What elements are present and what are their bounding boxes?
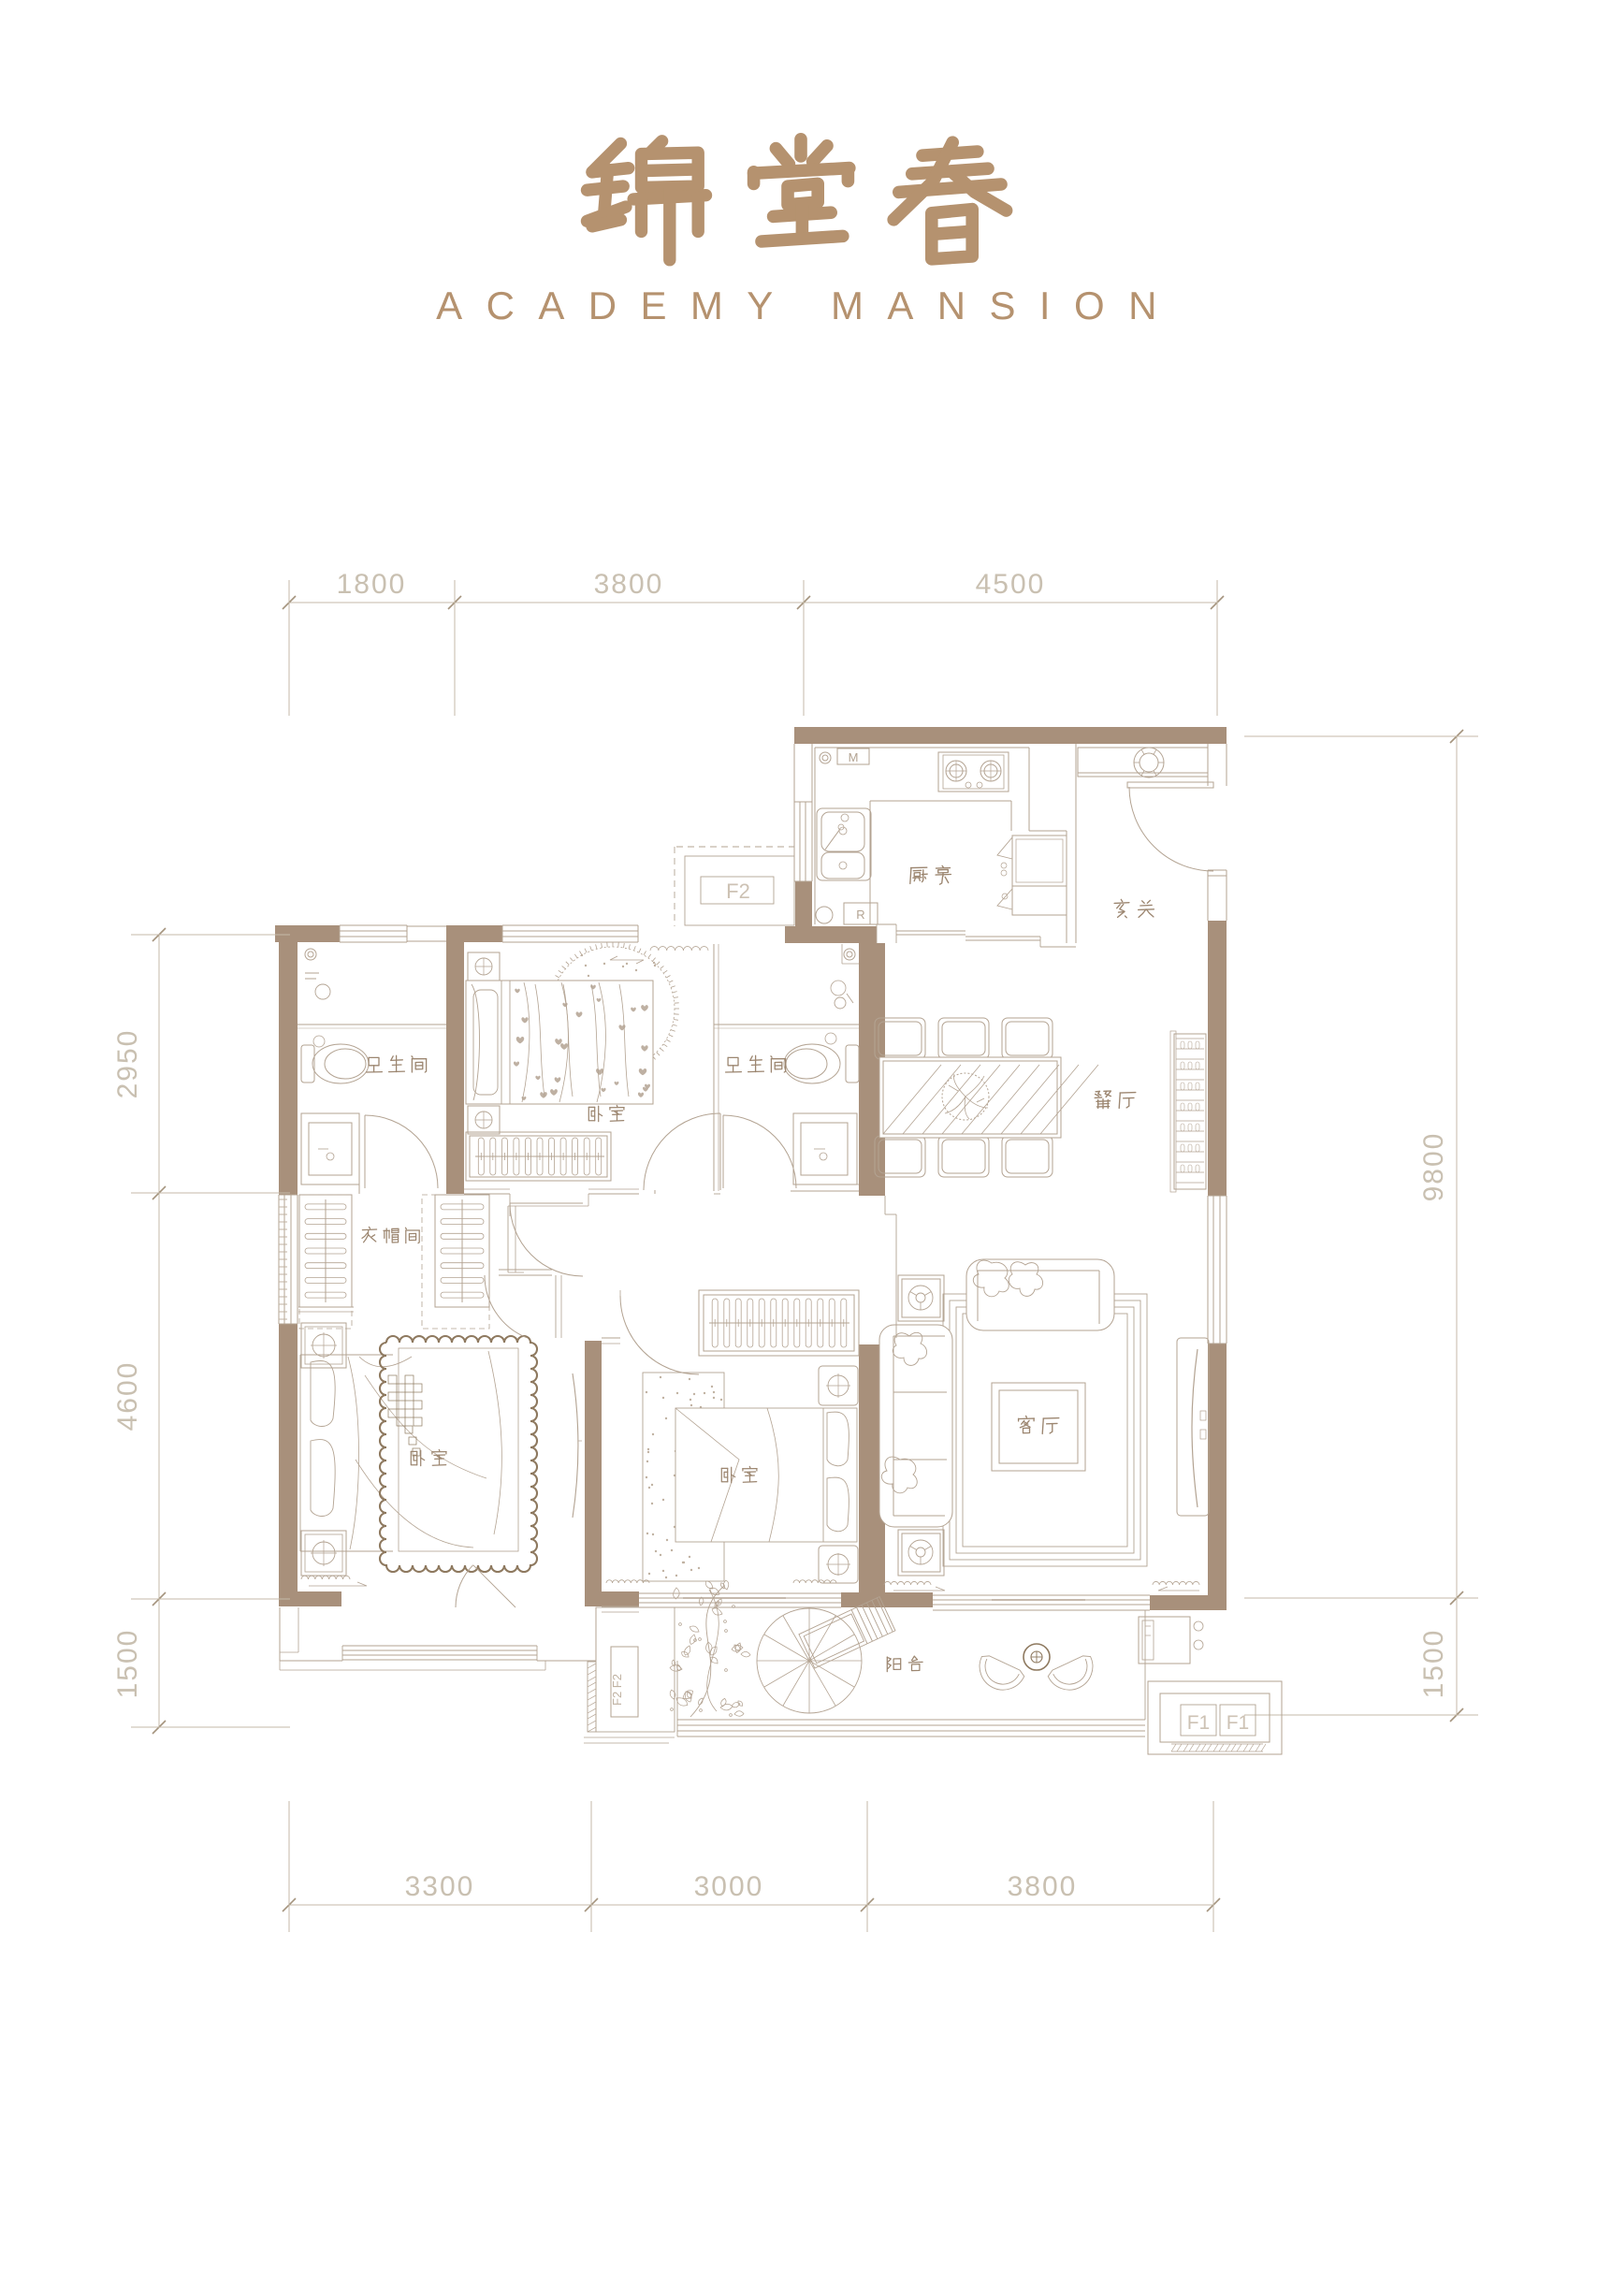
svg-text:1500: 1500 (112, 1629, 143, 1699)
svg-text:F1: F1 (1227, 1712, 1250, 1734)
svg-text:3300: 3300 (405, 1871, 475, 1902)
svg-text:F2: F2 (726, 879, 750, 903)
svg-text:2950: 2950 (112, 1029, 143, 1099)
svg-text:1800: 1800 (337, 569, 407, 600)
svg-text:M: M (849, 750, 859, 764)
svg-text:4600: 4600 (112, 1361, 143, 1431)
svg-text:3000: 3000 (694, 1871, 764, 1902)
svg-text:3800: 3800 (594, 569, 664, 600)
svg-text:F1: F1 (1187, 1712, 1211, 1734)
svg-text:F2 F2: F2 F2 (610, 1674, 624, 1706)
svg-text:3800: 3800 (1008, 1871, 1078, 1902)
svg-text:4500: 4500 (976, 569, 1046, 600)
svg-text:9800: 9800 (1418, 1132, 1449, 1202)
svg-text:1500: 1500 (1418, 1629, 1449, 1699)
svg-text:ACADEMY MANSION: ACADEMY MANSION (436, 283, 1181, 327)
svg-text:R: R (856, 908, 864, 922)
